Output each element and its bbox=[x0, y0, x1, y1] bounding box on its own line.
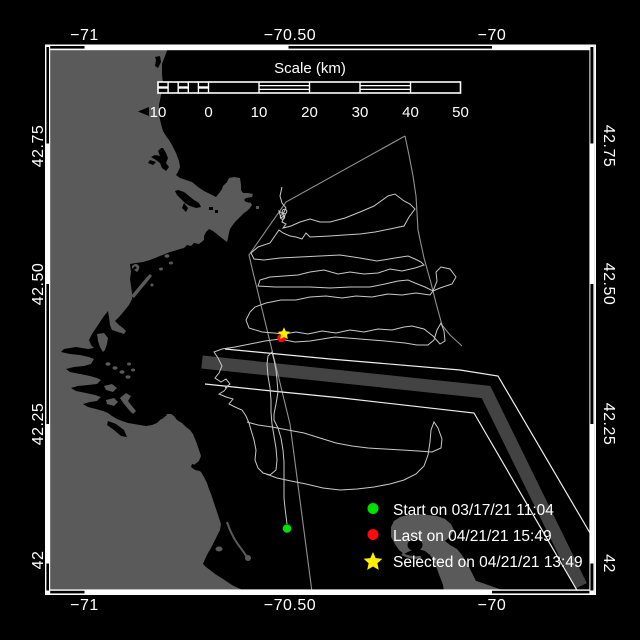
svg-text:20: 20 bbox=[301, 104, 318, 121]
svg-text:−70: −70 bbox=[478, 597, 507, 614]
svg-text:0: 0 bbox=[204, 104, 212, 121]
svg-text:30: 30 bbox=[352, 104, 369, 121]
svg-text:−70: −70 bbox=[478, 27, 507, 44]
svg-text:42: 42 bbox=[600, 554, 617, 573]
svg-text:−70.50: −70.50 bbox=[264, 27, 316, 44]
svg-text:40: 40 bbox=[402, 104, 419, 121]
svg-text:42.75: 42.75 bbox=[30, 125, 47, 168]
svg-text:50: 50 bbox=[452, 104, 469, 121]
svg-text:−71: −71 bbox=[70, 27, 99, 44]
svg-text:Scale (km): Scale (km) bbox=[274, 60, 346, 77]
svg-text:−71: −71 bbox=[70, 597, 99, 614]
svg-text:Start on 03/17/21 11:04: Start on 03/17/21 11:04 bbox=[393, 502, 554, 519]
svg-text:42.25: 42.25 bbox=[30, 403, 47, 446]
svg-text:10: 10 bbox=[251, 104, 268, 121]
svg-text:Selected on 04/21/21 13:49: Selected on 04/21/21 13:49 bbox=[393, 554, 583, 571]
svg-text:42.25: 42.25 bbox=[600, 403, 617, 446]
svg-text:10: 10 bbox=[150, 104, 167, 121]
svg-text:Last on 04/21/21 15:49: Last on 04/21/21 15:49 bbox=[393, 528, 552, 545]
svg-text:42.75: 42.75 bbox=[600, 125, 617, 168]
svg-text:−70.50: −70.50 bbox=[264, 597, 316, 614]
svg-text:42.50: 42.50 bbox=[600, 263, 617, 306]
svg-text:42: 42 bbox=[30, 551, 47, 570]
svg-text:42.50: 42.50 bbox=[30, 263, 47, 306]
